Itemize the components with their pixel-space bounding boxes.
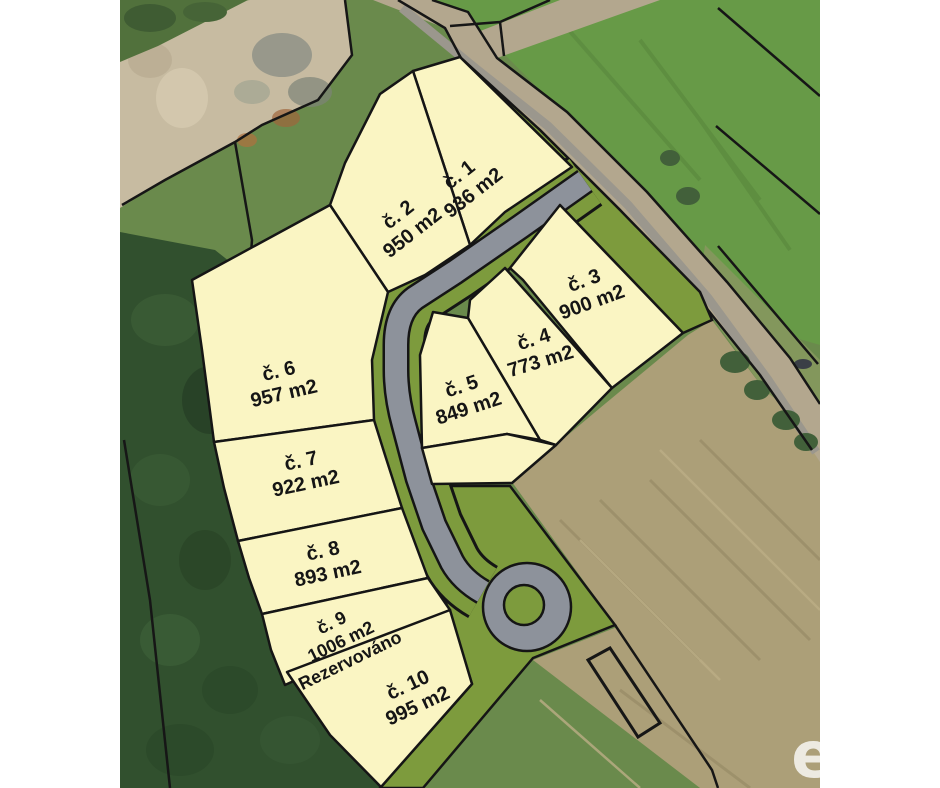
scrub-blob [124,4,176,32]
culdesac-island [504,585,544,625]
site-plan-map: č. 1 936 m2 č. 2 950 m2 č. 3 900 m2 č. 4… [0,0,940,788]
scrub-blob [183,2,227,22]
site-plan-svg: č. 1 936 m2 č. 2 950 m2 č. 3 900 m2 č. 4… [0,0,940,788]
